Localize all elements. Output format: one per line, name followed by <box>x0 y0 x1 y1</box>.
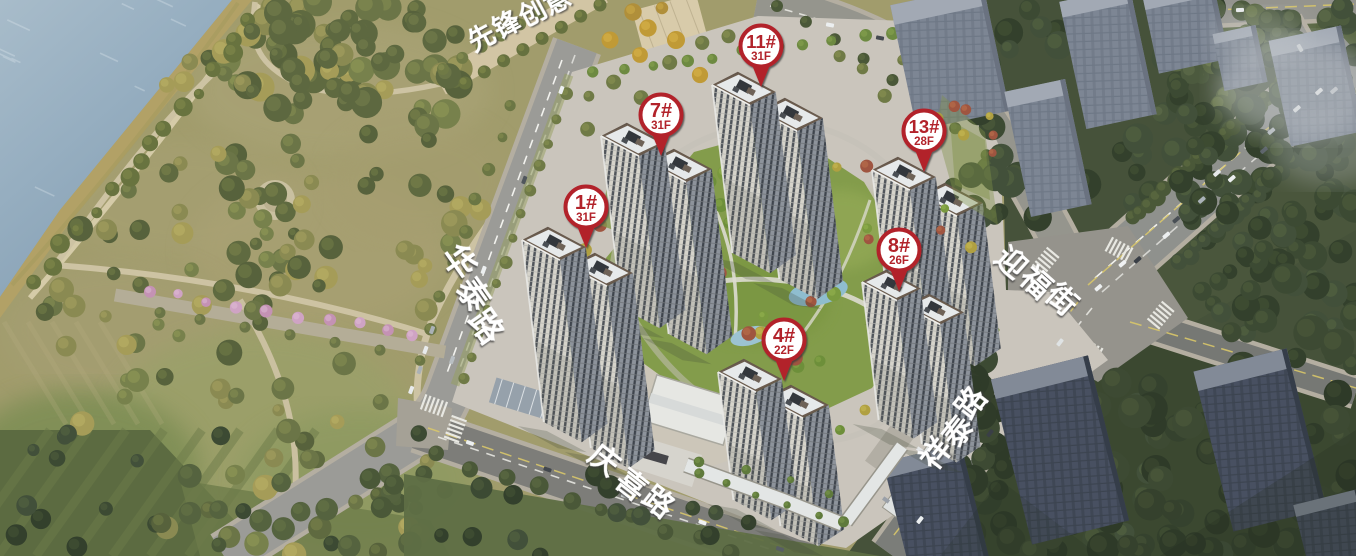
svg-text:31F: 31F <box>751 51 771 63</box>
svg-text:7#: 7# <box>650 100 672 122</box>
svg-text:31F: 31F <box>576 212 596 224</box>
svg-text:31F: 31F <box>651 120 671 132</box>
svg-text:4#: 4# <box>773 325 795 347</box>
svg-text:11#: 11# <box>746 31 776 52</box>
svg-text:26F: 26F <box>889 255 909 267</box>
svg-text:1#: 1# <box>575 192 597 214</box>
svg-text:22F: 22F <box>774 345 794 357</box>
svg-text:8#: 8# <box>888 235 910 257</box>
svg-text:28F: 28F <box>914 136 934 148</box>
svg-text:13#: 13# <box>909 116 940 137</box>
